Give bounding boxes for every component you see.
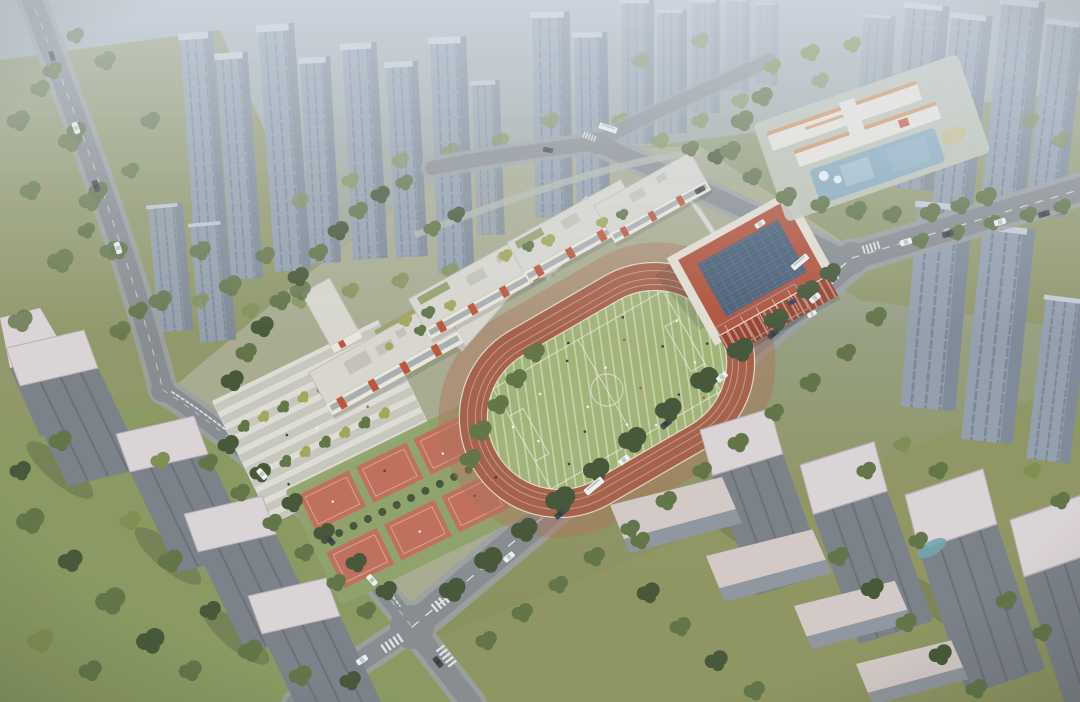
vignette [0, 0, 1080, 702]
aerial-campus-rendering [0, 0, 1080, 702]
